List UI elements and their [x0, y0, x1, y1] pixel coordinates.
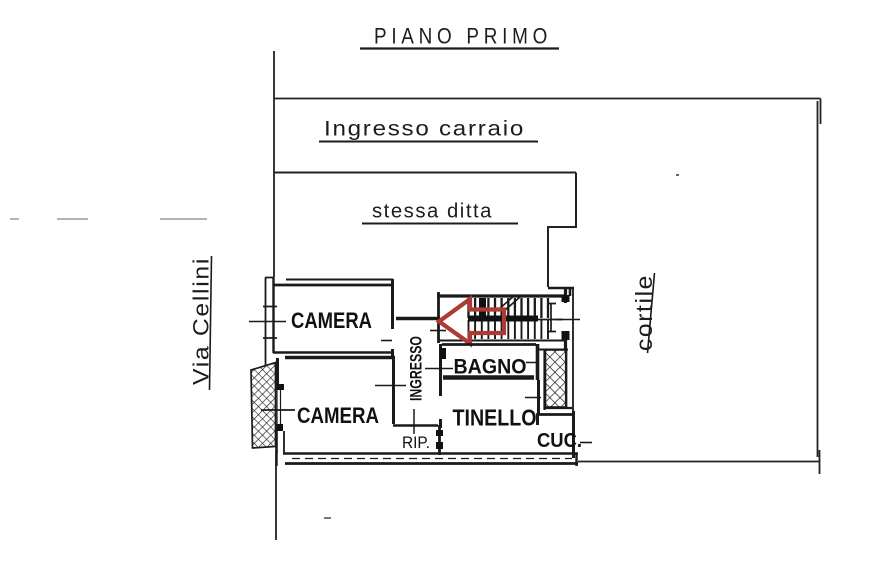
svg-text:CAMERA: CAMERA — [297, 403, 379, 428]
svg-text:CAMERA: CAMERA — [291, 308, 372, 333]
svg-text:PIANO PRIMO: PIANO PRIMO — [374, 24, 552, 49]
svg-text:stessa ditta: stessa ditta — [372, 201, 493, 223]
svg-text:CUC.: CUC. — [537, 430, 582, 452]
svg-text:INGRESSO: INGRESSO — [407, 336, 426, 401]
svg-text:Ingresso carraio: Ingresso carraio — [324, 118, 525, 141]
svg-text:BAGNO: BAGNO — [454, 355, 527, 379]
svg-text:TINELLO: TINELLO — [453, 405, 537, 431]
svg-text:RIP.: RIP. — [402, 434, 430, 452]
